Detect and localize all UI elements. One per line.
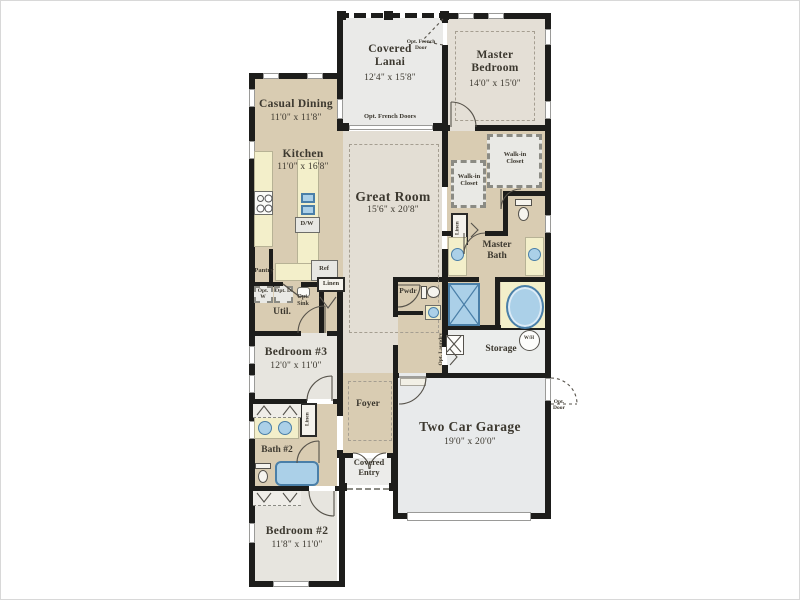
window xyxy=(545,101,551,119)
wall-wc-left xyxy=(503,191,508,236)
floor-plan: Casual Dining 11'0" x 11'8" Kitchen 11'0… xyxy=(0,0,800,600)
toilet-pwdr xyxy=(427,286,440,298)
covered-lanai-floor xyxy=(341,17,443,127)
room-label-covered-entry: Covered Entry xyxy=(344,458,394,478)
wall-great-suite-a xyxy=(442,125,448,187)
room-label-kitchen: Kitchen xyxy=(282,148,323,161)
window xyxy=(249,375,255,393)
window xyxy=(249,89,255,107)
kitchen-sink xyxy=(301,205,315,215)
room-label-master-bedroom: Master Bedroom xyxy=(458,49,532,75)
wall-util-bed3-a xyxy=(249,331,301,336)
wall-master-lanai2 xyxy=(442,45,448,131)
master-shower xyxy=(448,283,480,326)
foyer-ceiling-detail xyxy=(348,381,392,441)
wall-garage-left xyxy=(393,373,398,518)
label-opt-d: Opt. D xyxy=(275,288,291,294)
garage-door-sill xyxy=(407,512,531,521)
room-dims-bedroom2: 11'8" x 11'0" xyxy=(271,540,322,551)
bed2-closet xyxy=(253,491,301,506)
room-dims-casual-dining: 11'0" x 11'8" xyxy=(270,113,321,124)
entry-post xyxy=(339,483,347,491)
stove xyxy=(254,191,273,215)
window xyxy=(273,581,309,587)
label-ref: Ref xyxy=(319,265,329,272)
wall-wc-top xyxy=(503,191,551,196)
toilet-bath2 xyxy=(255,463,271,469)
bath2-tub xyxy=(275,461,319,486)
room-dims-bedroom3: 12'0" x 11'0" xyxy=(270,361,321,372)
room-label-bedroom3: Bedroom #3 xyxy=(265,346,328,359)
wall-lanai-bottom-cap xyxy=(337,123,349,131)
entry-post xyxy=(389,483,397,491)
label-wh: W/H xyxy=(524,336,534,342)
kitchen-sink xyxy=(301,193,315,203)
bath2-sink xyxy=(278,421,292,435)
room-label-garage: Two Car Garage xyxy=(419,419,521,435)
window xyxy=(249,523,255,543)
opt-french-doors-opening xyxy=(349,125,433,130)
toilet-master xyxy=(515,199,532,206)
room-label-bedroom2: Bedroom #2 xyxy=(266,525,329,538)
toilet-bath2 xyxy=(258,470,268,483)
label-linen-bath2: Linen xyxy=(305,412,311,426)
wall-suite-east xyxy=(545,125,551,378)
wall-garage-bottom-b xyxy=(529,513,551,519)
label-opt-door: Opt. Door xyxy=(548,399,570,412)
window xyxy=(249,346,255,364)
label-wic-left: Walk-in Closet xyxy=(449,173,489,188)
laundry-tub xyxy=(446,335,464,355)
room-label-master-bath: Master Bath xyxy=(473,240,521,262)
label-dw: D/W xyxy=(301,220,314,227)
stove-burners xyxy=(257,195,264,202)
label-opt-french-door: Opt. French Door xyxy=(406,39,436,52)
pantry-wall xyxy=(269,249,273,282)
master-door-opening xyxy=(450,125,475,131)
entry-edge-dashed xyxy=(347,488,389,490)
pwdr-sink xyxy=(428,307,439,318)
bed3-closet xyxy=(253,404,301,418)
toilet-master xyxy=(518,207,529,221)
window xyxy=(545,29,551,45)
bath2-sink xyxy=(258,421,272,435)
label-opt-french-doors: Opt. French Doors xyxy=(364,113,416,120)
lanai-post xyxy=(384,11,393,20)
master-sink-left xyxy=(451,248,464,261)
label-opt-w: Opt. W xyxy=(255,288,271,301)
room-label-pwdr: Pwdr xyxy=(399,287,417,296)
wall-garage-right-b xyxy=(545,401,551,518)
wall-util-bed3-b xyxy=(327,331,339,336)
label-linen-kitchen: Linen xyxy=(323,280,339,287)
garage-step xyxy=(400,378,426,386)
room-label-great-room: Great Room xyxy=(355,189,430,205)
label-pantry: Pantry xyxy=(254,267,273,274)
label-wic-right: Walk-in Closet xyxy=(495,151,535,166)
wall-lanai-top xyxy=(337,13,449,18)
wall-hall-east-a xyxy=(337,282,343,416)
room-dims-covered-lanai: 12'4" x 15'8" xyxy=(364,73,416,84)
master-ceiling-detail xyxy=(455,31,535,121)
room-label-util: Util. xyxy=(273,307,291,318)
room-label-storage: Storage xyxy=(485,344,516,355)
window xyxy=(307,73,323,79)
room-dims-kitchen: 11'0" x 16'8" xyxy=(277,162,328,173)
room-label-bath2: Bath #2 xyxy=(261,445,292,456)
wall-master-lanai xyxy=(442,13,448,23)
master-sink-right xyxy=(528,248,541,261)
master-tub xyxy=(506,285,544,329)
wall-bed3-bath2-b xyxy=(333,399,343,404)
garage-opt-door-opening xyxy=(545,378,551,401)
label-linen-suite: Linen xyxy=(455,221,461,235)
window xyxy=(458,13,474,19)
window xyxy=(488,13,504,19)
room-dims-master-bedroom: 14'0" x 15'0" xyxy=(469,79,521,90)
window xyxy=(545,215,551,233)
kitchen-counter-bottom xyxy=(275,263,315,281)
room-dims-garage: 19'0" x 20'0" xyxy=(444,437,496,448)
window xyxy=(337,99,343,119)
room-dims-great-room: 15'6" x 20'8" xyxy=(367,205,419,216)
label-opt-sink: Opt. Sink xyxy=(292,294,314,308)
label-opt-laundry: Opt. Laundry xyxy=(438,333,444,366)
room-label-foyer: Foyer xyxy=(356,399,380,410)
room-label-casual-dining: Casual Dining xyxy=(259,98,333,111)
window xyxy=(263,73,279,79)
wall-tub-shower xyxy=(495,277,500,329)
